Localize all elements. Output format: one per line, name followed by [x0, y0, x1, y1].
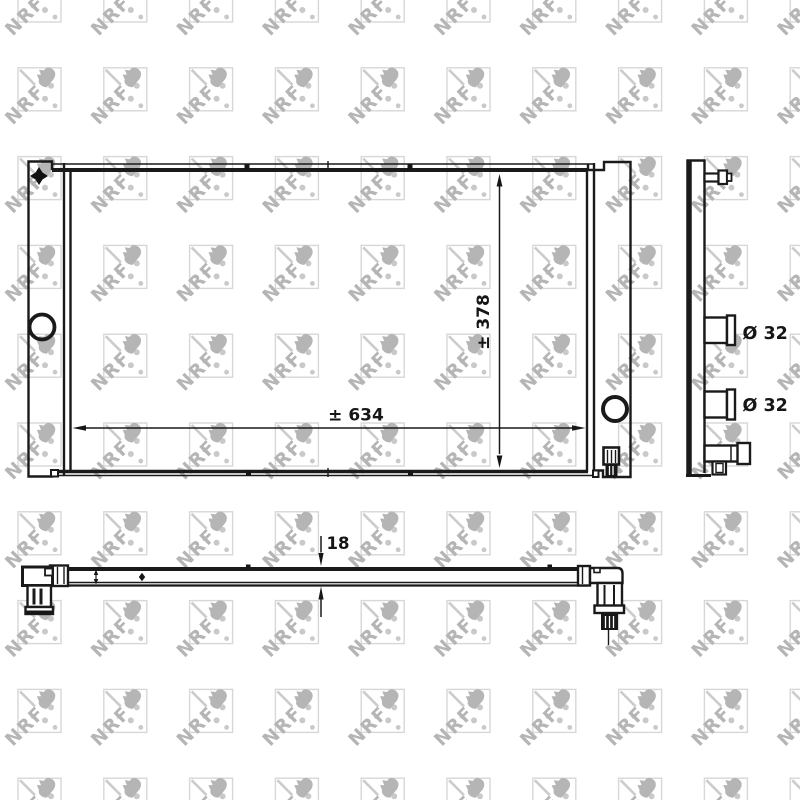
arrow-down-icon — [318, 553, 323, 566]
watermark-tile: NRF — [684, 773, 751, 800]
watermark-tile: NRF — [255, 773, 322, 800]
watermark-brand-text: NRF — [774, 170, 800, 218]
watermark-tile: NRF — [170, 0, 237, 40]
thickness-dimension: 18 — [318, 534, 349, 617]
watermark-tile: NRF — [427, 773, 494, 800]
watermark-tile: NRF — [170, 507, 237, 574]
watermark-brand-text: NRF — [259, 703, 307, 751]
watermark-brand-text: NRF — [1, 614, 49, 662]
watermark-brand-text: NRF — [87, 81, 135, 129]
watermark-brand-text: NRF — [345, 525, 393, 573]
nrf-logo-icon: NRF — [255, 0, 322, 40]
watermark-slash — [792, 514, 800, 529]
nrf-logo-icon: NRF — [599, 329, 666, 396]
nrf-logo-icon: NRF — [513, 0, 580, 40]
watermark-tile: NRF — [170, 63, 237, 130]
nrf-logo-icon: NRF — [427, 0, 494, 40]
watermark-brand-text: NRF — [774, 348, 800, 396]
watermark-brand-text: NRF — [345, 81, 393, 129]
watermark-brand-text: NRF — [516, 436, 564, 484]
watermark-brand-text: NRF — [774, 525, 800, 573]
watermark-tile: NRF — [599, 507, 666, 574]
top-edge-tick — [245, 165, 250, 171]
watermark-brand-text: NRF — [87, 525, 135, 573]
watermark-brand-text: NRF — [173, 525, 221, 573]
bottom-edge-tick — [246, 470, 251, 476]
watermark-brand-text: NRF — [173, 259, 221, 307]
nrf-logo-icon: NRF — [84, 0, 151, 40]
watermark-brand-text: NRF — [516, 614, 564, 662]
watermark-tile: NRF — [513, 240, 580, 307]
nrf-logo-icon: NRF — [513, 507, 580, 574]
nrf-logo-icon: NRF — [84, 151, 151, 218]
nrf-logo-icon: NRF — [170, 240, 237, 307]
radiator-technical-drawing: NRF NRF — [0, 0, 800, 800]
watermark-tile: NRF — [770, 684, 800, 751]
nrf-logo-icon: NRF — [170, 0, 237, 40]
nrf-logo-icon: NRF — [84, 63, 151, 130]
nrf-logo-icon: NRF — [255, 595, 322, 662]
watermark-brand-text: NRF — [430, 170, 478, 218]
watermark-tile: NRF — [770, 151, 800, 218]
nrf-logo-icon: NRF — [427, 773, 494, 800]
watermark-tile: NRF — [170, 595, 237, 662]
watermark-tile: NRF — [770, 418, 800, 485]
watermark-slash — [792, 70, 800, 85]
watermark-slash — [792, 336, 800, 351]
watermark-tile: NRF — [255, 507, 322, 574]
watermark-brand-text: NRF — [430, 614, 478, 662]
nrf-logo-icon: NRF — [341, 595, 408, 662]
watermark-brand-text: NRF — [345, 348, 393, 396]
watermark-tile: NRF — [0, 240, 64, 307]
watermark-brand-text: NRF — [87, 0, 135, 40]
watermark-tile: NRF — [84, 684, 151, 751]
nrf-logo-icon: NRF — [255, 63, 322, 130]
nrf-logo-icon: NRF — [770, 0, 800, 40]
nrf-logo-icon: NRF — [0, 0, 64, 40]
nrf-logo-icon: NRF — [255, 507, 322, 574]
watermark-tile: NRF — [84, 151, 151, 218]
watermark-tile: NRF — [341, 773, 408, 800]
nrf-logo-icon: NRF — [599, 63, 666, 130]
watermark-tile: NRF — [513, 151, 580, 218]
nrf-logo-icon: NRF — [0, 329, 64, 396]
nrf-logo-icon: NRF — [684, 595, 751, 662]
nrf-logo-icon: NRF — [427, 684, 494, 751]
nrf-logo-icon: NRF — [255, 773, 322, 800]
top-edge-tick — [408, 165, 413, 171]
watermark-brand-text: NRF — [259, 525, 307, 573]
watermark-tile: NRF — [255, 0, 322, 40]
watermark-brand-text: NRF — [87, 170, 135, 218]
watermark-tile: NRF — [84, 773, 151, 800]
nrf-logo-icon: NRF — [513, 63, 580, 130]
watermark-brand-text: NRF — [87, 348, 135, 396]
nrf-logo-icon: NRF — [0, 684, 64, 751]
upper-port — [705, 316, 736, 346]
watermark-brand-text: NRF — [688, 0, 736, 40]
nrf-logo-icon: NRF — [84, 595, 151, 662]
watermark-layer: NRF NRF NRF — [0, 0, 800, 800]
right-bracket-tab — [593, 471, 599, 478]
lower-port-diameter-label: Ø 32 — [743, 396, 788, 416]
watermark-brand-text: NRF — [516, 170, 564, 218]
nrf-logo-icon: NRF — [84, 240, 151, 307]
watermark-brand-text: NRF — [774, 703, 800, 751]
watermark-tile: NRF — [255, 151, 322, 218]
watermark-tile: NRF — [84, 507, 151, 574]
watermark-tile: NRF — [427, 63, 494, 130]
watermark-brand-text: NRF — [688, 703, 736, 751]
watermark-slash — [792, 691, 800, 706]
nrf-logo-icon: NRF — [0, 240, 64, 307]
watermark-brand-text: NRF — [173, 348, 221, 396]
watermark-tile: NRF — [427, 595, 494, 662]
width-dimension-label: ± 634 — [328, 406, 384, 426]
nrf-logo-icon: NRF — [255, 151, 322, 218]
nrf-logo-icon: NRF — [0, 507, 64, 574]
nrf-logo-icon: NRF — [341, 240, 408, 307]
nrf-logo-icon: NRF — [427, 151, 494, 218]
watermark-brand-text: NRF — [259, 259, 307, 307]
watermark-tile: NRF — [341, 595, 408, 662]
watermark-brand-text: NRF — [87, 614, 135, 662]
watermark-brand-text: NRF — [87, 703, 135, 751]
watermark-tile: NRF — [427, 684, 494, 751]
technical-drawing-page: NRF NRF — [0, 0, 800, 800]
watermark-tile: NRF — [599, 329, 666, 396]
width-dimension: ± 634 — [73, 406, 586, 431]
watermark-tile: NRF — [0, 63, 64, 130]
watermark-brand-text: NRF — [430, 348, 478, 396]
watermark-brand-text: NRF — [602, 170, 650, 218]
watermark-brand-text: NRF — [1, 348, 49, 396]
upper-port-diameter-label: Ø 32 — [743, 324, 788, 344]
watermark-brand-text: NRF — [173, 614, 221, 662]
watermark-brand-text: NRF — [430, 0, 478, 40]
nrf-logo-icon: NRF — [170, 595, 237, 662]
nrf-logo-icon: NRF — [513, 684, 580, 751]
watermark-tile: NRF — [84, 595, 151, 662]
watermark-brand-text: NRF — [516, 525, 564, 573]
watermark-tile: NRF — [255, 63, 322, 130]
watermark-brand-text: NRF — [1, 81, 49, 129]
watermark-tile: NRF — [84, 240, 151, 307]
nrf-logo-icon: NRF — [599, 507, 666, 574]
watermark-tile: NRF — [341, 63, 408, 130]
watermark-brand-text: NRF — [602, 0, 650, 40]
watermark-brand-text: NRF — [516, 259, 564, 307]
nrf-logo-icon: NRF — [599, 684, 666, 751]
watermark-tile: NRF — [255, 595, 322, 662]
watermark-tile: NRF — [341, 684, 408, 751]
nrf-logo-icon: NRF — [513, 329, 580, 396]
watermark-brand-text: NRF — [430, 436, 478, 484]
watermark-brand-text: NRF — [173, 436, 221, 484]
watermark-tile: NRF — [770, 240, 800, 307]
nrf-logo-icon: NRF — [513, 595, 580, 662]
watermark-brand-text: NRF — [516, 348, 564, 396]
watermark-brand-text: NRF — [688, 259, 736, 307]
watermark-tile: NRF — [170, 151, 237, 218]
nrf-logo-icon: NRF — [684, 0, 751, 40]
watermark-tile: NRF — [427, 507, 494, 574]
watermark-tile: NRF — [770, 773, 800, 800]
watermark-tile: NRF — [170, 240, 237, 307]
nrf-logo-icon: NRF — [427, 63, 494, 130]
watermark-brand-text: NRF — [345, 259, 393, 307]
watermark-brand-text: NRF — [173, 81, 221, 129]
nrf-logo-icon: NRF — [684, 773, 751, 800]
watermark-tile: NRF — [170, 773, 237, 800]
arrow-up-icon — [497, 174, 503, 187]
watermark-tile: NRF — [341, 240, 408, 307]
watermark-tile: NRF — [599, 0, 666, 40]
nrf-logo-icon: NRF — [599, 240, 666, 307]
watermark-brand-text: NRF — [87, 259, 135, 307]
nrf-logo-icon: NRF — [513, 151, 580, 218]
watermark-slash — [792, 603, 800, 618]
left-mounting-hole — [30, 315, 55, 340]
watermark-tile: NRF — [684, 240, 751, 307]
watermark-tile: NRF — [599, 684, 666, 751]
nrf-logo-icon: NRF — [84, 684, 151, 751]
watermark-brand-text: NRF — [259, 0, 307, 40]
nrf-logo-icon: NRF — [170, 684, 237, 751]
watermark-brand-text: NRF — [259, 614, 307, 662]
nrf-logo-icon: NRF — [84, 773, 151, 800]
watermark-slash — [792, 425, 800, 440]
watermark-tile: NRF — [770, 507, 800, 574]
watermark-tile: NRF — [513, 63, 580, 130]
arrow-right-icon — [572, 425, 586, 431]
watermark-brand-text: NRF — [1, 259, 49, 307]
watermark-brand-text: NRF — [1, 703, 49, 751]
bleed-port — [705, 171, 732, 185]
watermark-brand-text: NRF — [259, 81, 307, 129]
watermark-brand-text: NRF — [345, 170, 393, 218]
nrf-logo-icon: NRF — [341, 507, 408, 574]
watermark-brand-text: NRF — [516, 81, 564, 129]
nrf-logo-icon: NRF — [341, 773, 408, 800]
watermark-tile: NRF — [84, 63, 151, 130]
nrf-logo-icon: NRF — [170, 507, 237, 574]
nrf-logo-icon: NRF — [84, 329, 151, 396]
nrf-logo-icon: NRF — [255, 240, 322, 307]
watermark-tile: NRF — [84, 0, 151, 40]
watermark-tile: NRF — [599, 240, 666, 307]
left-fitting — [23, 567, 54, 614]
watermark-tile: NRF — [599, 63, 666, 130]
watermark-tile: NRF — [341, 0, 408, 40]
watermark-brand-text: NRF — [259, 170, 307, 218]
watermark-brand-text: NRF — [516, 0, 564, 40]
watermark-brand-text: NRF — [345, 703, 393, 751]
right-end-tank — [578, 566, 590, 586]
nrf-logo-icon: NRF — [770, 773, 800, 800]
nrf-logo-icon: NRF — [341, 684, 408, 751]
watermark-brand-text: NRF — [173, 0, 221, 40]
arrow-left-icon — [73, 425, 87, 431]
watermark-brand-text: NRF — [430, 525, 478, 573]
watermark-brand-text: NRF — [259, 348, 307, 396]
watermark-tile: NRF — [513, 0, 580, 40]
nrf-logo-icon: NRF — [341, 151, 408, 218]
watermark-tile: NRF — [427, 151, 494, 218]
watermark-brand-text: NRF — [173, 170, 221, 218]
nrf-logo-icon: NRF — [0, 63, 64, 130]
left-bracket-tab — [51, 470, 58, 477]
nrf-logo-icon: NRF — [599, 0, 666, 40]
watermark-tile: NRF — [0, 773, 64, 800]
watermark-tile: NRF — [170, 329, 237, 396]
watermark-brand-text: NRF — [430, 81, 478, 129]
watermark-tile: NRF — [513, 595, 580, 662]
nrf-logo-icon: NRF — [170, 63, 237, 130]
nrf-logo-icon: NRF — [170, 329, 237, 396]
arrow-down-icon — [497, 456, 503, 469]
watermark-brand-text: NRF — [774, 81, 800, 129]
watermark-brand-text: NRF — [602, 525, 650, 573]
watermark-brand-text: NRF — [774, 614, 800, 662]
watermark-brand-text: NRF — [688, 525, 736, 573]
watermark-tile: NRF — [770, 63, 800, 130]
nrf-logo-icon: NRF — [170, 773, 237, 800]
nrf-logo-icon: NRF — [341, 329, 408, 396]
watermark-tile: NRF — [513, 684, 580, 751]
lower-port — [705, 390, 736, 420]
watermark-brand-text: NRF — [173, 703, 221, 751]
watermark-tile: NRF — [427, 0, 494, 40]
watermark-brand-text: NRF — [774, 436, 800, 484]
watermark-slash — [792, 247, 800, 262]
watermark-tile: NRF — [684, 0, 751, 40]
nrf-logo-icon: NRF — [0, 773, 64, 800]
watermark-tile: NRF — [684, 684, 751, 751]
watermark-tile: NRF — [513, 329, 580, 396]
watermark-tile: NRF — [0, 329, 64, 396]
watermark-brand-text: NRF — [87, 436, 135, 484]
nrf-logo-icon: NRF — [684, 507, 751, 574]
nrf-logo-icon: NRF — [427, 507, 494, 574]
nrf-logo-icon: NRF — [684, 684, 751, 751]
watermark-brand-text: NRF — [602, 259, 650, 307]
thickness-dimension-label: 18 — [327, 534, 350, 553]
nrf-logo-icon: NRF — [255, 684, 322, 751]
watermark-brand-text: NRF — [688, 614, 736, 662]
watermark-brand-text: NRF — [688, 81, 736, 129]
nrf-logo-icon: NRF — [513, 240, 580, 307]
watermark-tile: NRF — [684, 595, 751, 662]
watermark-brand-text: NRF — [602, 348, 650, 396]
watermark-tile: NRF — [684, 63, 751, 130]
watermark-tile: NRF — [255, 240, 322, 307]
watermark-tile: NRF — [513, 773, 580, 800]
nrf-logo-icon: NRF — [427, 595, 494, 662]
nrf-logo-icon: NRF — [599, 773, 666, 800]
nrf-logo-icon: NRF — [513, 773, 580, 800]
watermark-brand-text: NRF — [259, 436, 307, 484]
watermark-tile: NRF — [0, 0, 64, 40]
watermark-tile: NRF — [341, 507, 408, 574]
watermark-tile: NRF — [599, 773, 666, 800]
watermark-brand-text: NRF — [345, 436, 393, 484]
watermark-tile: NRF — [770, 0, 800, 40]
watermark-brand-text: NRF — [345, 0, 393, 40]
nrf-logo-icon: NRF — [684, 63, 751, 130]
right-mounting-hole — [603, 397, 627, 421]
watermark-tile: NRF — [770, 595, 800, 662]
nrf-logo-icon: NRF — [341, 0, 408, 40]
watermark-brand-text: NRF — [430, 259, 478, 307]
watermark-brand-text: NRF — [516, 703, 564, 751]
watermark-tile: NRF — [513, 507, 580, 574]
nrf-logo-icon: NRF — [341, 63, 408, 130]
height-dimension-label: ± 378 — [474, 294, 494, 350]
watermark-slash — [792, 159, 800, 174]
drain-plug-thread — [606, 465, 618, 477]
nrf-logo-icon: NRF — [255, 329, 322, 396]
watermark-brand-text: NRF — [602, 81, 650, 129]
watermark-brand-text: NRF — [345, 614, 393, 662]
watermark-tile: NRF — [255, 329, 322, 396]
watermark-brand-text: NRF — [430, 703, 478, 751]
watermark-brand-text: NRF — [774, 792, 800, 800]
nrf-logo-icon: NRF — [84, 507, 151, 574]
watermark-tile: NRF — [0, 684, 64, 751]
nrf-logo-icon: NRF — [170, 151, 237, 218]
watermark-tile: NRF — [341, 151, 408, 218]
watermark-tile: NRF — [684, 507, 751, 574]
watermark-slash — [792, 780, 800, 795]
watermark-tile: NRF — [341, 329, 408, 396]
watermark-tile: NRF — [0, 507, 64, 574]
watermark-tile: NRF — [84, 329, 151, 396]
watermark-brand-text: NRF — [774, 259, 800, 307]
watermark-tile: NRF — [170, 684, 237, 751]
nrf-logo-icon: NRF — [684, 240, 751, 307]
watermark-brand-text: NRF — [774, 0, 800, 40]
watermark-brand-text: NRF — [1, 0, 49, 40]
watermark-brand-text: NRF — [602, 703, 650, 751]
bottom-edge-tick — [408, 470, 413, 476]
watermark-tile: NRF — [255, 684, 322, 751]
